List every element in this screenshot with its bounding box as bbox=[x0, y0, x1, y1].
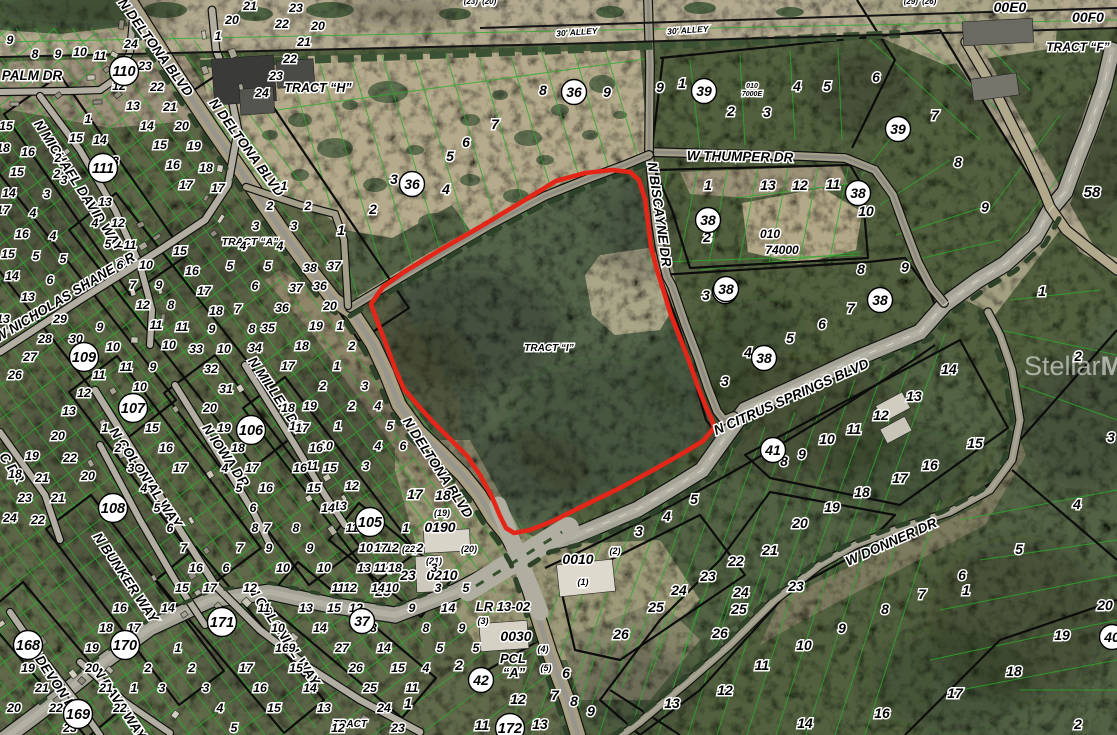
svg-text:(3): (3) bbox=[478, 616, 489, 626]
svg-text:3: 3 bbox=[253, 219, 260, 233]
svg-text:(20): (20) bbox=[461, 544, 477, 554]
svg-text:19: 19 bbox=[303, 399, 317, 413]
svg-text:21: 21 bbox=[242, 0, 257, 13]
svg-text:7: 7 bbox=[130, 278, 138, 292]
svg-text:22: 22 bbox=[727, 553, 744, 569]
svg-text:26: 26 bbox=[711, 625, 728, 641]
svg-text:39: 39 bbox=[696, 83, 712, 99]
svg-text:1: 1 bbox=[85, 112, 92, 126]
svg-text:14: 14 bbox=[377, 641, 391, 655]
svg-text:34: 34 bbox=[248, 341, 262, 355]
svg-text:20: 20 bbox=[322, 299, 337, 313]
svg-text:23: 23 bbox=[288, 1, 303, 15]
svg-text:(29)’ (26): (29)’ (26) bbox=[904, 0, 937, 6]
svg-text:2: 2 bbox=[368, 201, 377, 217]
svg-text:15: 15 bbox=[0, 119, 14, 133]
svg-text:14: 14 bbox=[797, 715, 813, 731]
svg-text:16: 16 bbox=[275, 641, 289, 655]
svg-text:8: 8 bbox=[168, 298, 175, 312]
svg-text:5: 5 bbox=[236, 481, 244, 495]
svg-text:8: 8 bbox=[32, 47, 39, 61]
svg-text:3: 3 bbox=[159, 681, 166, 695]
svg-text:38: 38 bbox=[700, 212, 716, 228]
svg-text:18: 18 bbox=[0, 141, 10, 155]
svg-text:15: 15 bbox=[391, 661, 406, 675]
svg-text:TRACT “H”: TRACT “H” bbox=[284, 81, 352, 95]
svg-text:14: 14 bbox=[303, 681, 317, 695]
svg-text:111: 111 bbox=[92, 161, 114, 177]
svg-text:22: 22 bbox=[149, 80, 164, 94]
svg-text:17: 17 bbox=[173, 461, 188, 475]
svg-text:9: 9 bbox=[901, 259, 909, 275]
svg-text:16: 16 bbox=[159, 441, 173, 455]
svg-text:5: 5 bbox=[463, 581, 471, 595]
svg-text:4: 4 bbox=[448, 601, 456, 615]
svg-text:15: 15 bbox=[267, 701, 282, 715]
svg-text:38: 38 bbox=[872, 292, 888, 308]
svg-text:11: 11 bbox=[120, 360, 133, 374]
svg-text:172: 172 bbox=[498, 721, 522, 735]
svg-text:17: 17 bbox=[374, 541, 389, 555]
svg-text:10: 10 bbox=[271, 621, 285, 635]
svg-text:TRACT “A”: TRACT “A” bbox=[222, 236, 279, 248]
svg-text:24: 24 bbox=[254, 86, 269, 100]
svg-text:17: 17 bbox=[281, 359, 296, 373]
svg-text:6: 6 bbox=[462, 134, 470, 150]
svg-text:26: 26 bbox=[348, 661, 363, 675]
svg-text:8: 8 bbox=[857, 261, 865, 277]
svg-text:12: 12 bbox=[510, 691, 526, 707]
svg-text:18: 18 bbox=[435, 487, 451, 503]
svg-text:6: 6 bbox=[167, 521, 174, 535]
svg-text:2: 2 bbox=[416, 541, 424, 555]
svg-text:3: 3 bbox=[1107, 429, 1115, 445]
svg-text:23: 23 bbox=[787, 578, 804, 594]
svg-text:9: 9 bbox=[981, 199, 989, 215]
svg-text:(2): (2) bbox=[610, 546, 621, 556]
svg-text:5: 5 bbox=[690, 491, 698, 507]
svg-text:4: 4 bbox=[743, 344, 752, 360]
svg-text:18: 18 bbox=[209, 304, 223, 318]
svg-text:42: 42 bbox=[472, 672, 489, 688]
svg-text:22: 22 bbox=[48, 701, 63, 715]
svg-text:22: 22 bbox=[112, 701, 127, 715]
svg-text:20: 20 bbox=[310, 19, 325, 33]
svg-text:15: 15 bbox=[1, 247, 16, 261]
svg-text:14: 14 bbox=[140, 119, 154, 133]
svg-text:24: 24 bbox=[670, 582, 687, 598]
svg-text:11: 11 bbox=[826, 176, 841, 192]
svg-text:9: 9 bbox=[289, 641, 296, 655]
svg-text:13: 13 bbox=[906, 388, 922, 404]
svg-text:4: 4 bbox=[49, 229, 57, 243]
svg-text:16: 16 bbox=[309, 441, 323, 455]
svg-text:14: 14 bbox=[5, 269, 19, 283]
svg-text:22: 22 bbox=[30, 513, 45, 527]
svg-text:18: 18 bbox=[854, 484, 870, 500]
svg-text:8: 8 bbox=[249, 322, 256, 336]
svg-text:6: 6 bbox=[872, 69, 880, 85]
svg-text:13: 13 bbox=[333, 499, 347, 513]
svg-text:4: 4 bbox=[221, 461, 229, 475]
svg-text:15: 15 bbox=[327, 601, 342, 615]
svg-text:18: 18 bbox=[388, 561, 402, 575]
svg-text:11: 11 bbox=[406, 681, 419, 695]
svg-text:13: 13 bbox=[126, 99, 140, 113]
svg-text:14: 14 bbox=[161, 601, 175, 615]
svg-text:36: 36 bbox=[566, 84, 582, 100]
svg-text:3: 3 bbox=[431, 561, 438, 575]
svg-text:19: 19 bbox=[1054, 627, 1070, 643]
svg-text:13: 13 bbox=[62, 404, 76, 418]
svg-text:2: 2 bbox=[54, 151, 62, 165]
svg-text:6: 6 bbox=[252, 279, 259, 293]
svg-text:3: 3 bbox=[635, 523, 643, 539]
svg-text:16: 16 bbox=[21, 145, 35, 159]
svg-text:24: 24 bbox=[2, 511, 17, 525]
svg-text:10: 10 bbox=[317, 561, 331, 575]
svg-text:W THUMPER DR: W THUMPER DR bbox=[687, 148, 794, 165]
svg-text:37: 37 bbox=[289, 281, 304, 295]
svg-text:37: 37 bbox=[327, 259, 342, 273]
svg-text:1: 1 bbox=[337, 222, 345, 238]
svg-text:17: 17 bbox=[295, 421, 310, 435]
svg-text:9: 9 bbox=[838, 620, 846, 636]
svg-text:5: 5 bbox=[437, 641, 445, 655]
svg-text:31: 31 bbox=[219, 382, 233, 396]
svg-text:4: 4 bbox=[441, 181, 450, 197]
svg-text:2: 2 bbox=[319, 379, 327, 393]
svg-text:1: 1 bbox=[962, 582, 970, 598]
svg-text:28: 28 bbox=[37, 332, 52, 346]
svg-text:27: 27 bbox=[22, 350, 38, 364]
svg-text:23: 23 bbox=[268, 69, 283, 83]
svg-text:106: 106 bbox=[239, 423, 264, 439]
svg-text:5: 5 bbox=[154, 501, 162, 515]
svg-text:5: 5 bbox=[786, 330, 794, 346]
svg-text:20: 20 bbox=[174, 119, 189, 133]
svg-text:1: 1 bbox=[678, 75, 686, 91]
svg-text:12: 12 bbox=[77, 386, 91, 400]
svg-text:21: 21 bbox=[50, 491, 65, 505]
svg-text:1: 1 bbox=[334, 359, 341, 373]
svg-text:3: 3 bbox=[291, 219, 298, 233]
svg-text:16: 16 bbox=[253, 681, 267, 695]
svg-text:16: 16 bbox=[185, 264, 199, 278]
svg-text:25: 25 bbox=[362, 681, 378, 695]
svg-text:9: 9 bbox=[307, 541, 314, 555]
svg-text:1: 1 bbox=[335, 419, 342, 433]
svg-text:00F0: 00F0 bbox=[1072, 9, 1104, 25]
svg-text:10: 10 bbox=[217, 342, 231, 356]
svg-text:20: 20 bbox=[202, 401, 217, 415]
svg-text:13: 13 bbox=[664, 695, 680, 711]
svg-text:10: 10 bbox=[385, 581, 399, 595]
svg-text:14: 14 bbox=[321, 501, 335, 515]
svg-text:12: 12 bbox=[717, 682, 733, 698]
svg-text:TRACT “I”: TRACT “I” bbox=[524, 343, 573, 354]
svg-text:1: 1 bbox=[403, 521, 410, 535]
svg-text:23: 23 bbox=[137, 59, 152, 73]
svg-text:0030: 0030 bbox=[500, 628, 531, 644]
svg-text:1: 1 bbox=[175, 641, 182, 655]
svg-text:6: 6 bbox=[818, 316, 826, 332]
svg-text:18: 18 bbox=[1006, 663, 1022, 679]
svg-text:7: 7 bbox=[931, 107, 940, 123]
svg-text:21: 21 bbox=[98, 681, 113, 695]
svg-text:5: 5 bbox=[387, 419, 395, 433]
svg-text:3: 3 bbox=[390, 171, 398, 187]
svg-text:(19): (19) bbox=[434, 508, 450, 518]
svg-text:10: 10 bbox=[133, 380, 147, 394]
svg-text:15: 15 bbox=[307, 481, 322, 495]
svg-text:107: 107 bbox=[121, 401, 146, 417]
svg-text:14: 14 bbox=[371, 581, 385, 595]
svg-text:“A”: “A” bbox=[503, 665, 526, 680]
svg-text:171: 171 bbox=[210, 615, 234, 631]
svg-text:21: 21 bbox=[162, 100, 177, 114]
svg-text:36: 36 bbox=[275, 301, 289, 315]
svg-text:11: 11 bbox=[93, 368, 106, 382]
svg-text:10: 10 bbox=[106, 340, 120, 354]
svg-text:0010: 0010 bbox=[562, 551, 593, 567]
svg-text:4: 4 bbox=[140, 481, 148, 495]
svg-text:109: 109 bbox=[72, 350, 96, 366]
svg-text:9: 9 bbox=[409, 601, 416, 615]
svg-text:23: 23 bbox=[699, 568, 716, 584]
svg-text:7: 7 bbox=[847, 300, 856, 316]
svg-text:4: 4 bbox=[1072, 496, 1081, 512]
svg-text:11: 11 bbox=[258, 601, 271, 615]
svg-text:2: 2 bbox=[114, 441, 122, 455]
svg-text:6: 6 bbox=[400, 439, 407, 453]
svg-text:12: 12 bbox=[792, 177, 808, 193]
svg-text:4: 4 bbox=[662, 508, 671, 524]
svg-text:24: 24 bbox=[376, 701, 391, 715]
svg-text:6: 6 bbox=[958, 567, 966, 583]
svg-text:15: 15 bbox=[967, 435, 983, 451]
svg-text:2: 2 bbox=[53, 167, 61, 181]
svg-text:3: 3 bbox=[362, 379, 369, 393]
svg-text:13: 13 bbox=[760, 177, 776, 193]
svg-text:4: 4 bbox=[29, 206, 37, 220]
svg-text:19: 19 bbox=[21, 661, 35, 675]
svg-text:5: 5 bbox=[823, 78, 831, 94]
svg-text:3: 3 bbox=[363, 459, 370, 473]
svg-text:74000: 74000 bbox=[765, 243, 799, 257]
svg-text:11: 11 bbox=[847, 421, 862, 437]
svg-text:4: 4 bbox=[239, 239, 247, 253]
svg-text:40: 40 bbox=[1103, 629, 1117, 645]
svg-text:4: 4 bbox=[422, 661, 430, 675]
svg-text:4: 4 bbox=[374, 439, 382, 453]
svg-text:19: 19 bbox=[309, 319, 323, 333]
svg-text:3: 3 bbox=[44, 187, 51, 201]
svg-text:9: 9 bbox=[603, 84, 611, 100]
svg-text:13: 13 bbox=[0, 312, 10, 326]
svg-text:20: 20 bbox=[50, 429, 65, 443]
svg-text:8: 8 bbox=[423, 621, 430, 635]
svg-text:15: 15 bbox=[145, 421, 160, 435]
svg-text:5: 5 bbox=[265, 259, 273, 273]
svg-text:37: 37 bbox=[354, 613, 371, 629]
svg-text:11: 11 bbox=[176, 320, 189, 334]
svg-text:12: 12 bbox=[343, 581, 357, 595]
svg-text:5: 5 bbox=[33, 249, 41, 263]
svg-text:21: 21 bbox=[296, 35, 311, 49]
svg-text:9: 9 bbox=[156, 278, 163, 292]
svg-text:16: 16 bbox=[189, 561, 203, 575]
svg-text:12: 12 bbox=[243, 581, 257, 595]
svg-text:18: 18 bbox=[8, 467, 22, 481]
svg-text:25: 25 bbox=[647, 599, 664, 615]
svg-text:(1): (1) bbox=[578, 577, 589, 587]
svg-text:14: 14 bbox=[941, 361, 957, 377]
svg-text:3: 3 bbox=[61, 173, 68, 187]
svg-text:21: 21 bbox=[34, 471, 49, 485]
svg-text:2: 2 bbox=[348, 399, 356, 413]
svg-text:6: 6 bbox=[47, 273, 54, 287]
svg-text:1: 1 bbox=[102, 421, 109, 435]
svg-text:17: 17 bbox=[245, 461, 260, 475]
svg-text:23: 23 bbox=[17, 491, 32, 505]
svg-text:3: 3 bbox=[128, 461, 135, 475]
svg-text:5: 5 bbox=[446, 148, 454, 164]
svg-text:0190: 0190 bbox=[424, 519, 455, 535]
svg-text:14: 14 bbox=[313, 621, 327, 635]
svg-text:11: 11 bbox=[124, 238, 137, 252]
svg-text:16: 16 bbox=[15, 227, 29, 241]
svg-text:39: 39 bbox=[890, 121, 906, 137]
svg-text:9: 9 bbox=[459, 621, 466, 635]
svg-text:20: 20 bbox=[6, 701, 21, 715]
svg-text:9: 9 bbox=[209, 322, 216, 336]
svg-text:11: 11 bbox=[755, 657, 770, 673]
svg-text:32: 32 bbox=[204, 362, 218, 376]
svg-text:2: 2 bbox=[188, 661, 196, 675]
svg-text:3: 3 bbox=[435, 581, 442, 595]
svg-text:5: 5 bbox=[231, 721, 239, 735]
svg-text:10: 10 bbox=[276, 561, 290, 575]
svg-text:7: 7 bbox=[237, 541, 245, 555]
svg-text:5: 5 bbox=[60, 252, 68, 266]
svg-text:110: 110 bbox=[112, 64, 135, 80]
svg-text:4: 4 bbox=[276, 239, 284, 253]
svg-text:10: 10 bbox=[162, 338, 176, 352]
svg-text:16: 16 bbox=[113, 601, 127, 615]
svg-text:16: 16 bbox=[293, 461, 307, 475]
svg-text:2: 2 bbox=[144, 661, 152, 675]
svg-text:7: 7 bbox=[918, 586, 927, 602]
svg-text:2: 2 bbox=[1073, 716, 1082, 732]
svg-text:1: 1 bbox=[404, 695, 412, 711]
svg-text:2: 2 bbox=[454, 657, 463, 673]
svg-text:3: 3 bbox=[203, 681, 210, 695]
svg-text:18: 18 bbox=[99, 621, 113, 635]
svg-text:(5): (5) bbox=[541, 663, 552, 673]
svg-text:5: 5 bbox=[1015, 541, 1023, 557]
svg-text:17: 17 bbox=[947, 685, 964, 701]
svg-text:12: 12 bbox=[111, 216, 125, 230]
svg-text:8: 8 bbox=[293, 521, 300, 535]
svg-text:1: 1 bbox=[281, 179, 288, 193]
svg-text:18: 18 bbox=[295, 339, 309, 353]
svg-text:TRACT “F”: TRACT “F” bbox=[1046, 40, 1109, 54]
svg-text:9: 9 bbox=[798, 446, 806, 462]
svg-text:StellarMLS: StellarMLS bbox=[1024, 351, 1117, 381]
svg-text:9: 9 bbox=[656, 79, 664, 95]
svg-text:2: 2 bbox=[304, 199, 312, 213]
svg-text:5: 5 bbox=[473, 641, 481, 655]
svg-text:11: 11 bbox=[94, 49, 107, 63]
svg-text:17: 17 bbox=[892, 470, 909, 486]
svg-text:8: 8 bbox=[252, 521, 259, 535]
svg-text:10: 10 bbox=[359, 541, 373, 555]
svg-text:13: 13 bbox=[21, 290, 35, 304]
svg-text:15: 15 bbox=[153, 138, 168, 152]
svg-text:3: 3 bbox=[721, 373, 729, 389]
svg-text:6: 6 bbox=[117, 258, 124, 272]
svg-text:LR 13-02: LR 13-02 bbox=[476, 599, 531, 614]
svg-text:10: 10 bbox=[796, 637, 812, 653]
svg-text:8: 8 bbox=[881, 601, 889, 617]
svg-text:1: 1 bbox=[215, 29, 222, 43]
svg-text:17: 17 bbox=[407, 486, 424, 502]
svg-text:14: 14 bbox=[2, 186, 16, 200]
svg-text:9: 9 bbox=[97, 320, 104, 334]
svg-text:PALM DR: PALM DR bbox=[2, 68, 63, 83]
svg-text:1: 1 bbox=[1038, 283, 1046, 299]
svg-text:38: 38 bbox=[303, 261, 317, 275]
svg-text:17: 17 bbox=[197, 284, 212, 298]
svg-text:18: 18 bbox=[231, 441, 245, 455]
svg-text:1: 1 bbox=[337, 319, 344, 333]
svg-text:22: 22 bbox=[282, 52, 297, 66]
svg-text:10: 10 bbox=[139, 258, 153, 272]
svg-text:18: 18 bbox=[199, 161, 213, 175]
svg-text:17: 17 bbox=[203, 581, 218, 595]
svg-text:23: 23 bbox=[390, 721, 405, 735]
svg-text:21: 21 bbox=[34, 681, 49, 695]
svg-text:13: 13 bbox=[357, 561, 371, 575]
svg-text:5: 5 bbox=[105, 237, 113, 251]
svg-text:20: 20 bbox=[80, 469, 95, 483]
svg-text:4: 4 bbox=[216, 701, 224, 715]
svg-text:16: 16 bbox=[922, 457, 938, 473]
svg-text:8: 8 bbox=[539, 82, 547, 98]
svg-text:6: 6 bbox=[250, 501, 257, 515]
svg-text:7: 7 bbox=[235, 302, 243, 316]
svg-text:8: 8 bbox=[570, 693, 578, 709]
svg-text:33: 33 bbox=[189, 342, 203, 356]
svg-text:26: 26 bbox=[612, 626, 629, 642]
svg-text:15: 15 bbox=[10, 165, 25, 179]
svg-text:20: 20 bbox=[791, 515, 808, 531]
svg-text:26: 26 bbox=[7, 368, 22, 382]
svg-text:13: 13 bbox=[299, 601, 313, 615]
svg-text:22: 22 bbox=[62, 451, 77, 465]
svg-text:20: 20 bbox=[224, 13, 239, 27]
svg-text:1: 1 bbox=[131, 681, 138, 695]
svg-text:15: 15 bbox=[173, 244, 188, 258]
svg-text:10: 10 bbox=[73, 45, 87, 59]
svg-text:19: 19 bbox=[217, 421, 231, 435]
svg-text:11: 11 bbox=[374, 561, 387, 575]
svg-text:27: 27 bbox=[334, 641, 350, 655]
svg-text:3: 3 bbox=[702, 287, 710, 303]
svg-text:24: 24 bbox=[123, 37, 138, 51]
svg-text:12: 12 bbox=[873, 407, 889, 423]
